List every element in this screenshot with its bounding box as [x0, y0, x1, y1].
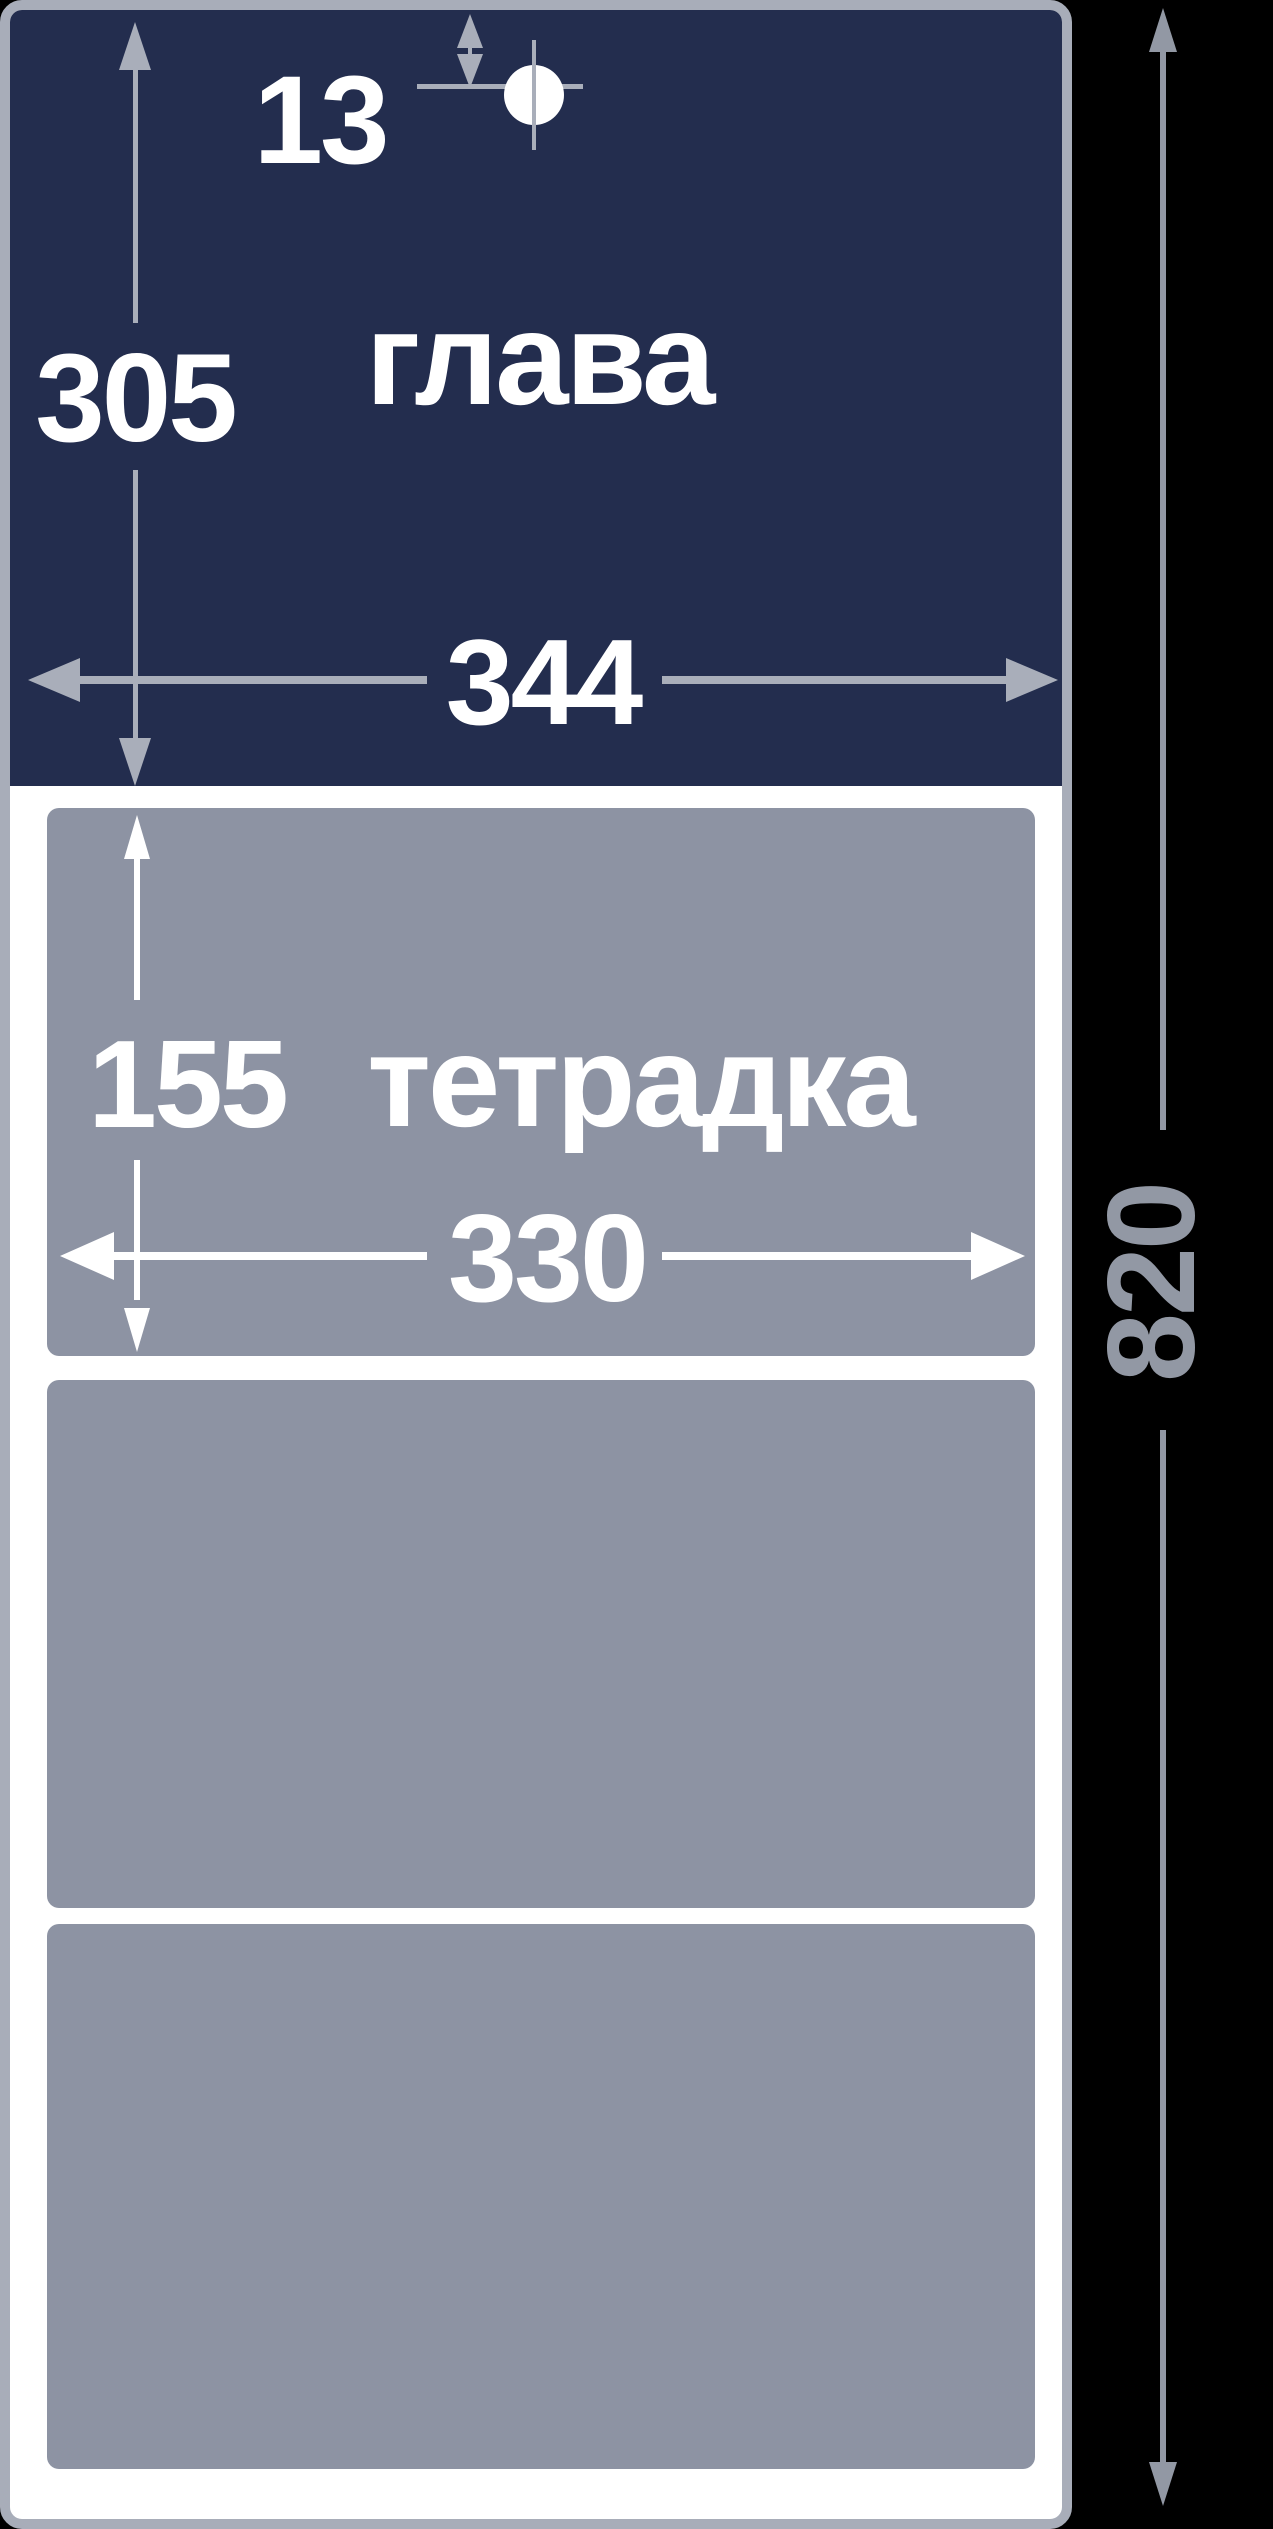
arrow-left-icon [28, 658, 80, 702]
hole-offset-value: 13 [210, 58, 430, 183]
arrow-down-icon [124, 1308, 150, 1352]
panel-label: тетрадка [330, 1016, 950, 1146]
header-height-dimension-line [133, 64, 138, 323]
notebook-panel-2 [47, 1380, 1035, 1908]
arrow-up-icon [119, 22, 151, 70]
drawing-canvas: глава 305 13 344 155 тетрадка 330 820 [0, 0, 1273, 2529]
panel-height-dimension-line [134, 853, 140, 1000]
header-width-dimension-line [76, 676, 427, 684]
panel-width-value: 330 [427, 1197, 667, 1321]
header-width-dimension-line [662, 676, 1010, 684]
arrow-left-icon [60, 1232, 114, 1280]
arrow-down-icon [457, 54, 483, 88]
panel-height-dimension-line [134, 1160, 140, 1300]
arrow-right-icon [971, 1232, 1025, 1280]
overall-height-dimension-line [1160, 1430, 1166, 2466]
notebook-panel-3 [47, 1924, 1035, 2469]
arrow-up-icon [457, 14, 483, 48]
panel-height-value: 155 [67, 1023, 307, 1147]
panel-width-dimension-line [110, 1252, 427, 1260]
arrow-down-icon [119, 738, 151, 786]
arrow-right-icon [1006, 658, 1058, 702]
arrow-down-icon [1149, 2462, 1177, 2506]
panel-width-dimension-line [662, 1252, 975, 1260]
header-height-dimension-line [133, 470, 138, 742]
hole-crosshair-vertical [532, 40, 536, 150]
header-width-value: 344 [393, 621, 693, 743]
overall-height-dimension-line [1160, 46, 1166, 1130]
header-height-value: 305 [15, 336, 255, 461]
header-label: глава [239, 293, 839, 425]
overall-height-value: 820 [1090, 1184, 1214, 1382]
